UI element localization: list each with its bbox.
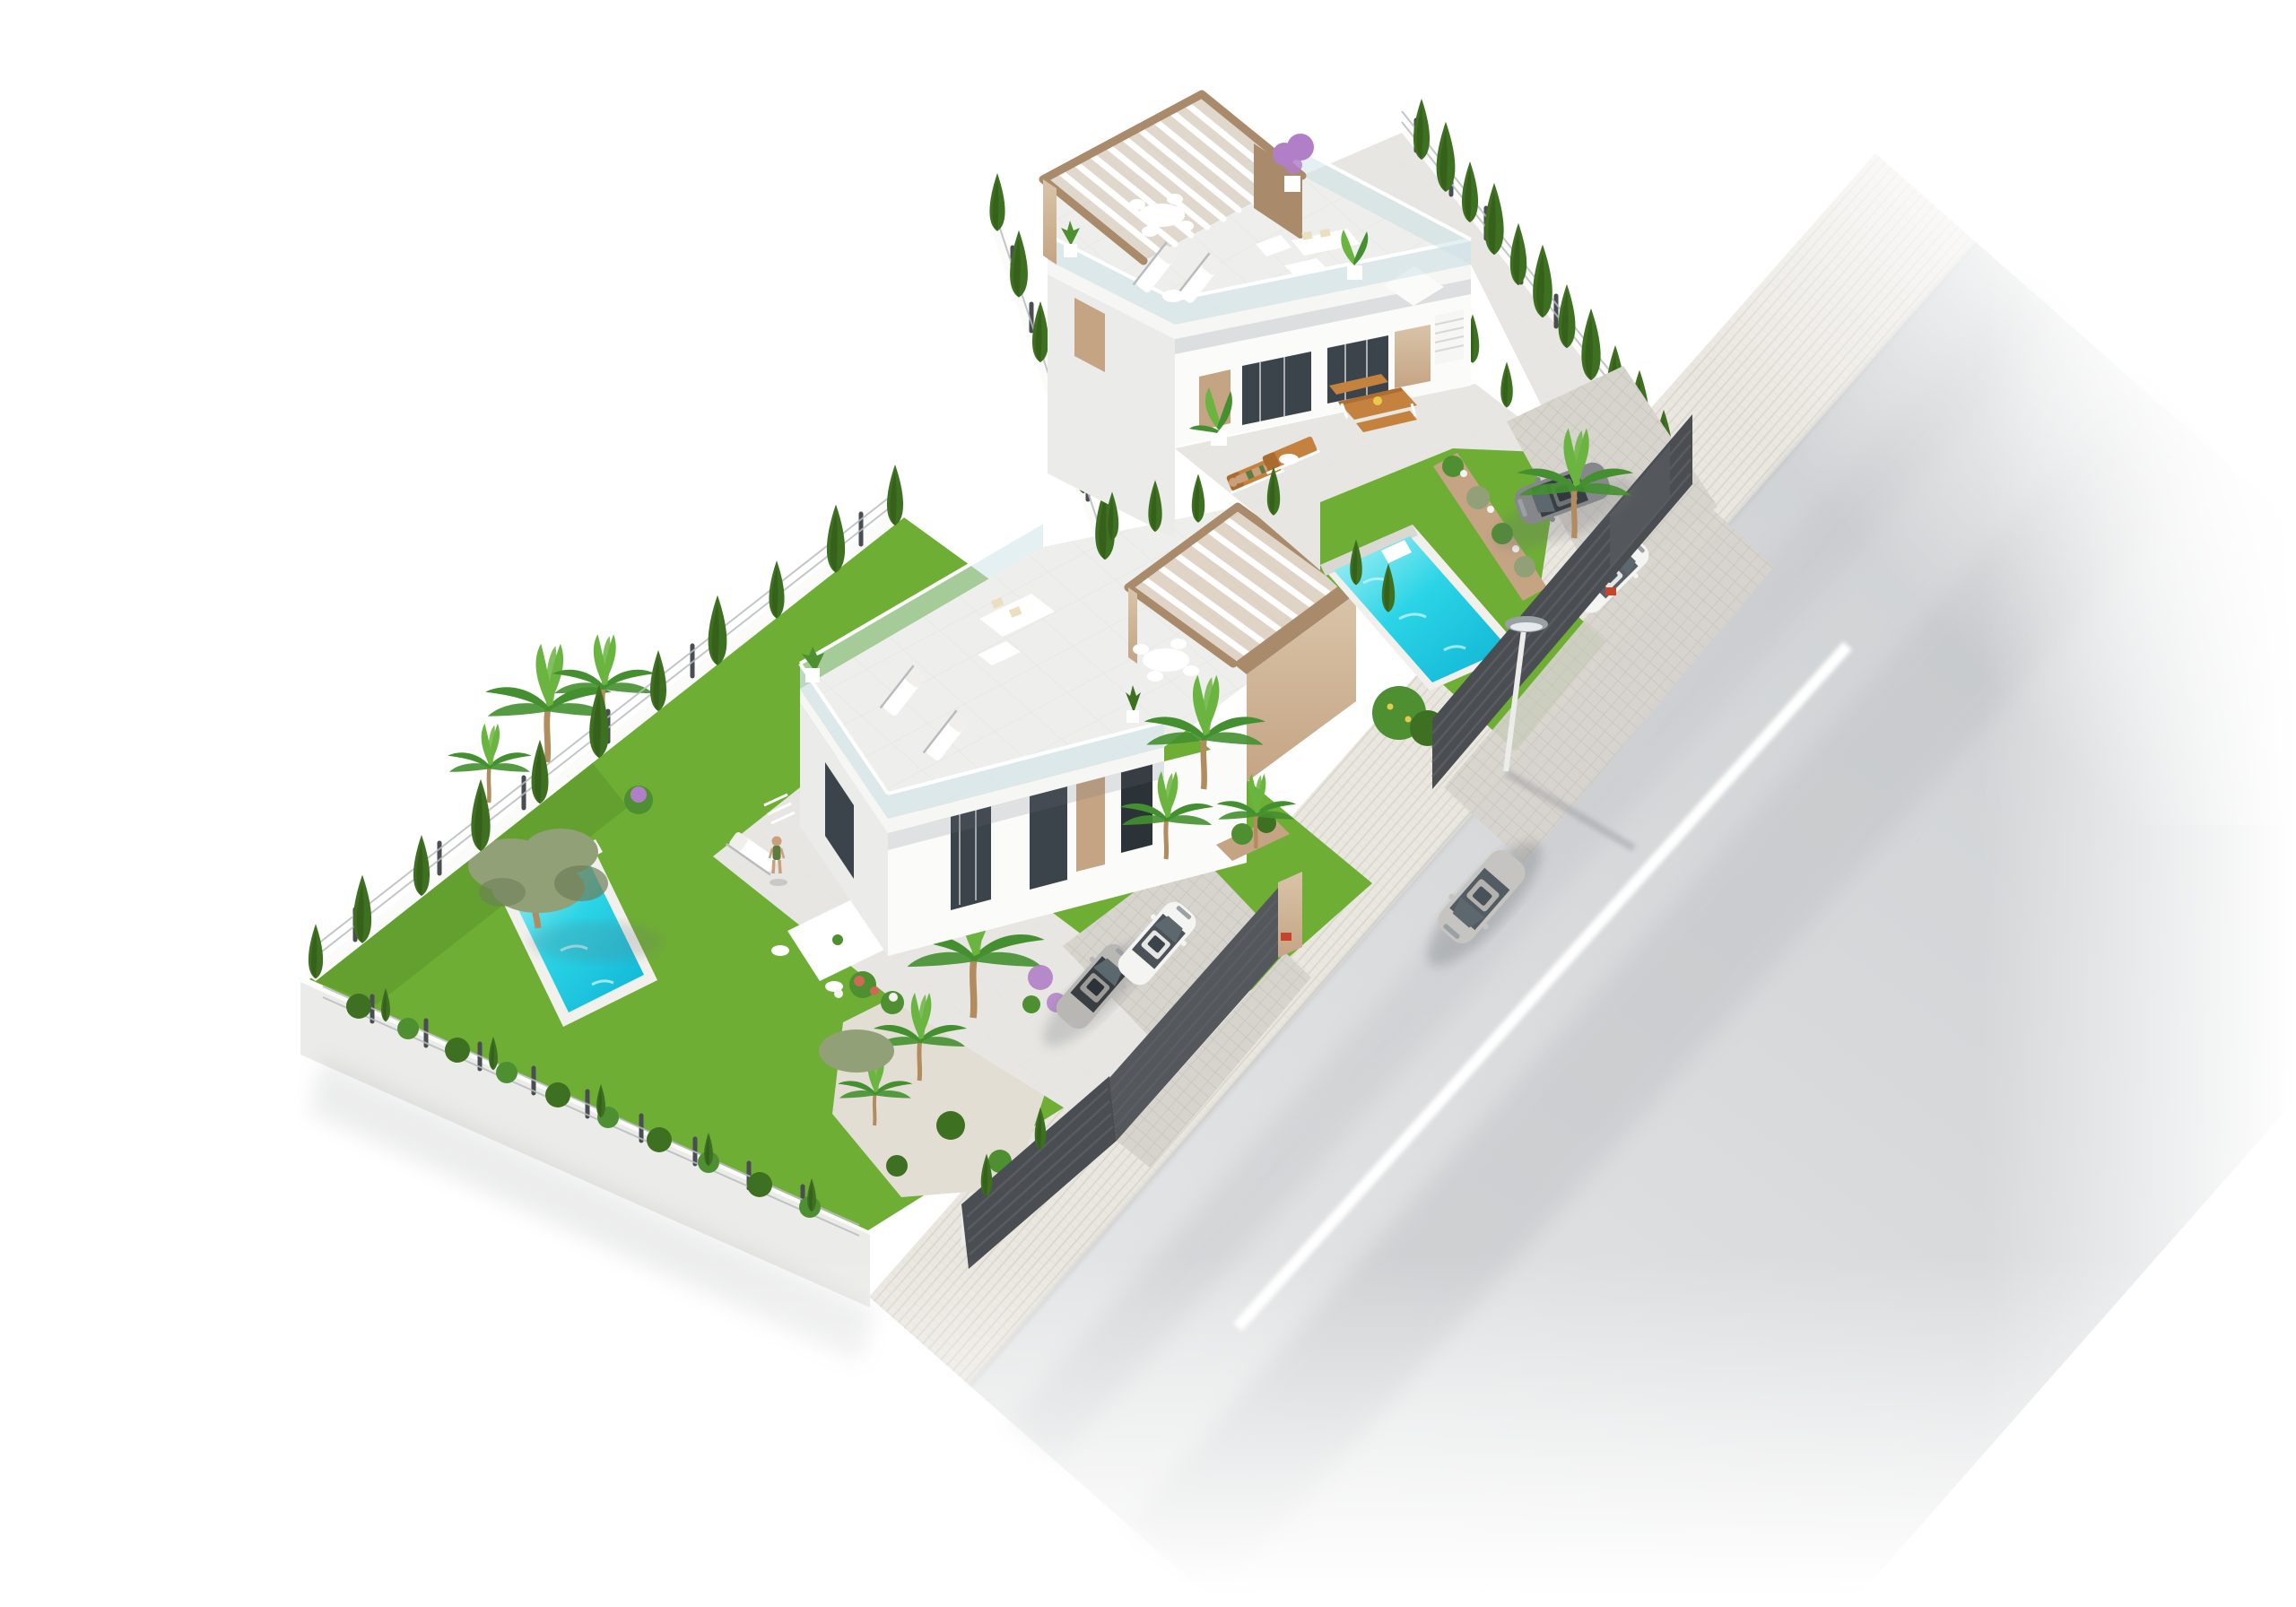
round-table (1143, 648, 1189, 672)
gate-pillar (1278, 872, 1302, 958)
round-table (1138, 204, 1185, 227)
fade-bottom (502, 1202, 2296, 1607)
render-canvas (0, 0, 2296, 1607)
tan-pillar (1395, 325, 1431, 388)
side-table (1162, 290, 1184, 302)
mailbox (1281, 933, 1291, 941)
side-table (1279, 454, 1299, 465)
villa-aerial-render (0, 0, 2296, 1607)
pergola-wall (1043, 179, 1057, 265)
